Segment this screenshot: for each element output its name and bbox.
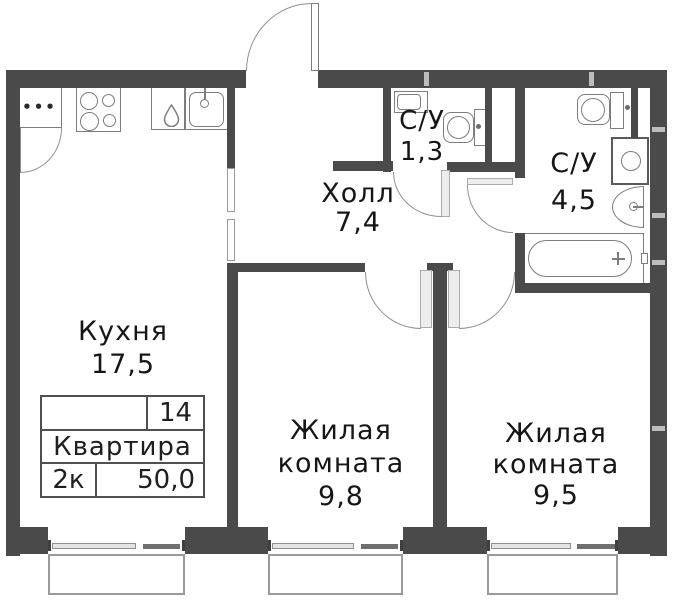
living-room1-label: Жилая комната 9,8 bbox=[255, 414, 427, 513]
stove-icon bbox=[76, 86, 121, 132]
wall-room1-top bbox=[227, 263, 365, 272]
apartment-total-area: 50,0 bbox=[97, 464, 203, 496]
hall-label: Холл 7,4 bbox=[298, 179, 418, 237]
wall-bottom-segment bbox=[185, 527, 268, 554]
fridge-door-swing-icon bbox=[20, 128, 62, 173]
room-area: 1,3 bbox=[390, 137, 454, 168]
window-sill bbox=[268, 554, 403, 595]
room-name: С/У bbox=[538, 145, 610, 182]
bath2-label: С/У 4,5 bbox=[538, 145, 610, 219]
wall-hall-stub bbox=[333, 161, 393, 171]
flush-button-icon bbox=[476, 124, 481, 129]
wall-between-rooms bbox=[433, 263, 447, 527]
wall-left bbox=[6, 70, 20, 556]
washing-machine-icon bbox=[611, 137, 649, 185]
wall-bath2-left-top bbox=[515, 88, 525, 178]
wall-bath2-bottom bbox=[515, 283, 650, 293]
apartment-type: 2к bbox=[42, 464, 97, 496]
kitchen-label: Кухня 17,5 bbox=[38, 315, 208, 381]
kitchen-zone-dashed-line bbox=[227, 219, 235, 261]
washbasin-icon bbox=[612, 186, 644, 228]
room-name: Кухня bbox=[38, 315, 208, 348]
floor-plan: ••• bbox=[0, 0, 675, 600]
room-area: 4,5 bbox=[538, 182, 610, 219]
room1-door-swing-icon bbox=[365, 272, 421, 329]
fridge-dots: ••• bbox=[18, 87, 61, 127]
wall-top-right bbox=[318, 70, 667, 88]
wall-bottom-segment bbox=[6, 527, 48, 554]
room-name: Холл bbox=[298, 179, 418, 208]
room-name2: комната bbox=[255, 447, 427, 480]
wall-top-left bbox=[6, 70, 246, 88]
apartment-number: 14 bbox=[148, 397, 203, 429]
room2-door-swing-icon bbox=[459, 272, 515, 329]
room-name2: комната bbox=[470, 449, 642, 480]
kitchen-sink-icon bbox=[189, 92, 224, 127]
bath1-door-leaf-icon bbox=[441, 170, 450, 217]
room-name: Жилая bbox=[470, 418, 642, 449]
kitchen-zone-dashed-line bbox=[227, 168, 235, 212]
flush-button-icon bbox=[625, 105, 630, 110]
wall-toilet-stub bbox=[631, 88, 638, 138]
window-kitchen-icon bbox=[48, 527, 185, 554]
room-area: 9,8 bbox=[255, 480, 427, 513]
wall-bath1-bottom bbox=[447, 162, 525, 172]
room1-door-leaf-icon bbox=[420, 270, 432, 328]
wall-kitchen-divider bbox=[227, 88, 235, 168]
wall-bath1-right bbox=[485, 88, 492, 164]
room-name: Жилая bbox=[255, 414, 427, 447]
wall-right bbox=[650, 70, 667, 556]
apartment-title: Квартира bbox=[42, 431, 203, 462]
window-sill bbox=[48, 554, 185, 595]
fridge-icon: ••• bbox=[17, 86, 62, 128]
wall-bottom-segment bbox=[403, 527, 487, 554]
window-room2-icon bbox=[487, 527, 618, 554]
kitchen-tap-icon bbox=[200, 99, 209, 108]
water-drop-icon bbox=[163, 104, 180, 127]
living-room2-label: Жилая комната 9,5 bbox=[470, 418, 642, 511]
bath2-door-leaf-icon bbox=[467, 178, 513, 185]
window-room1-icon bbox=[268, 527, 403, 554]
window-sill bbox=[487, 554, 618, 595]
wall-kitchen-room bbox=[227, 263, 238, 527]
entry-door-leaf-icon bbox=[311, 3, 319, 71]
entry-door-swing-icon bbox=[246, 3, 312, 71]
toilet-cistern-icon bbox=[610, 92, 624, 129]
room-name: С/У bbox=[390, 106, 454, 137]
bath2-door-swing-icon bbox=[467, 185, 513, 233]
info-table-logo-cell bbox=[42, 397, 148, 429]
bath1-label: С/У 1,3 bbox=[390, 106, 454, 168]
room-area: 9,5 bbox=[470, 480, 642, 511]
wall-bottom-segment bbox=[618, 527, 667, 554]
room-area: 17,5 bbox=[38, 348, 208, 381]
apartment-info-table: 14 Квартира 2к 50,0 bbox=[40, 395, 205, 498]
room-area: 7,4 bbox=[298, 208, 418, 237]
